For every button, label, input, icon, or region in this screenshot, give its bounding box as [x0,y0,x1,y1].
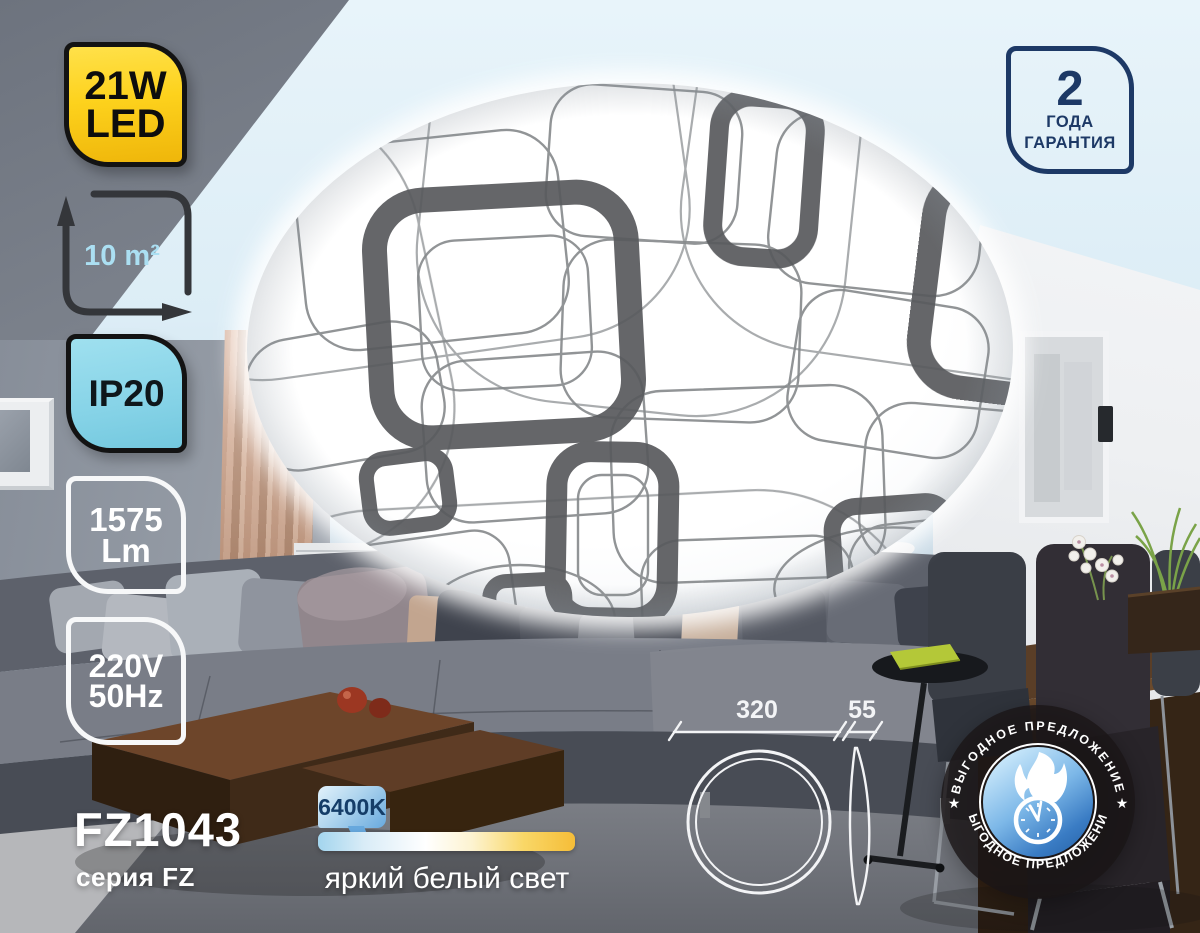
lumens-badge: 1575 Lm [66,476,186,594]
curtain-shading [219,330,317,598]
star-right-icon: ★ [1116,795,1129,811]
wall-picture-art [0,410,30,472]
voltage-badge: 220V 50Hz [66,617,186,745]
height-label: 55 [848,696,876,724]
model-series: серия FZ [76,862,195,893]
coverage-area-label: 10 m² [50,186,194,326]
ip-rating-badge: IP20 [66,334,187,453]
warranty-badge: 2 ГОДА ГАРАНТИЯ [1006,46,1134,174]
color-temperature-value: 6400K [318,794,386,821]
lumens-unit: Lm [101,535,151,566]
ip-value: IP20 [88,376,164,411]
product-promo-image: 21W LED 10 m² IP20 1575 Lm 220V 50Hz 2 Г… [0,0,1200,933]
warranty-years: 2 [1056,67,1083,111]
warranty-word1: ГОДА [1046,113,1093,132]
diameter-label: 320 [736,696,778,724]
warranty-word2: ГАРАНТИЯ [1024,134,1115,153]
frequency-value: 50Hz [89,681,164,711]
dimension-lines-icon: 320 55 [658,688,890,933]
dimension-drawing: 320 55 [658,688,890,933]
power-value: 21W [84,67,166,105]
color-temperature-gradient-bar [318,832,575,851]
area-value: 10 m² [84,240,160,273]
power-unit: LED [86,105,166,143]
promo-seal-icon: ВЫГОДНОЕ ПРЕДЛОЖЕНИЕ ВЫГОДНОЕ ПРЕДЛОЖЕНИ… [932,696,1144,908]
voltage-value: 220V [89,651,164,681]
promo-seal: ВЫГОДНОЕ ПРЕДЛОЖЕНИЕ ВЫГОДНОЕ ПРЕДЛОЖЕНИ… [932,696,1144,908]
light-description: яркий белый свет [300,862,594,896]
color-temperature-bubble: 6400K [318,786,386,828]
power-badge: 21W LED [64,42,187,167]
model-name: FZ1043 [74,806,242,853]
lumens-value: 1575 [89,504,162,535]
star-left-icon: ★ [948,795,961,811]
